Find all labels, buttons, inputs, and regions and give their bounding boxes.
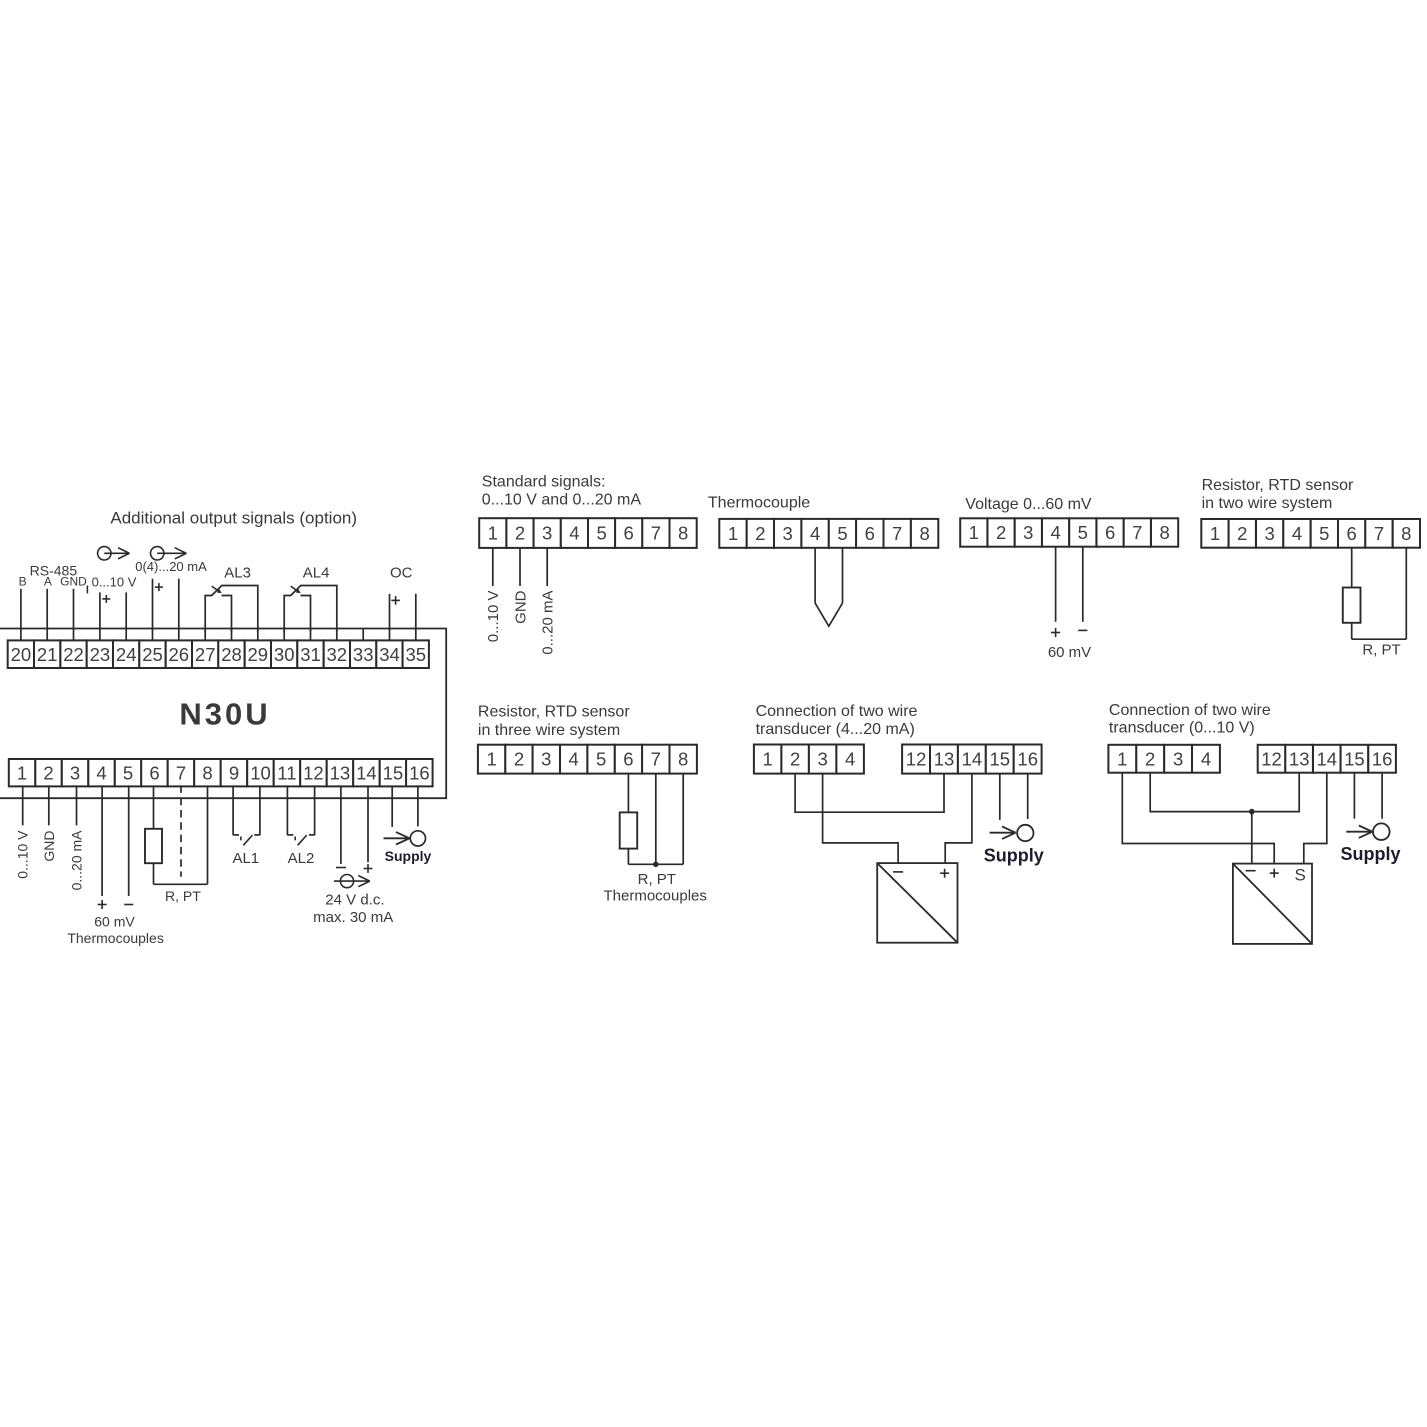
svg-text:25: 25 [142,644,163,665]
svg-text:6: 6 [865,523,875,544]
svg-text:60 mV: 60 mV [94,914,135,930]
svg-text:4: 4 [1201,748,1211,769]
svg-text:Supply: Supply [984,846,1044,866]
svg-text:4: 4 [569,749,579,770]
svg-text:R, PT: R, PT [638,871,676,888]
svg-text:Thermocouples: Thermocouples [67,930,164,946]
svg-text:1: 1 [1210,523,1220,544]
svg-text:2: 2 [1237,523,1247,544]
svg-text:GND: GND [41,831,57,862]
svg-text:29: 29 [248,644,269,665]
svg-text:60 mV: 60 mV [1048,644,1091,661]
svg-text:7: 7 [651,749,661,770]
svg-text:R, PT: R, PT [165,888,201,904]
svg-text:2: 2 [790,749,800,770]
svg-text:transducer (4...20 mA): transducer (4...20 mA) [756,721,915,738]
svg-text:30: 30 [274,644,295,665]
svg-text:2: 2 [43,762,53,783]
svg-text:2: 2 [514,749,524,770]
svg-text:4: 4 [810,523,820,544]
svg-text:8: 8 [678,749,688,770]
svg-text:2: 2 [996,522,1006,543]
svg-text:Thermocouples: Thermocouples [604,888,707,905]
svg-text:16: 16 [1017,749,1038,770]
svg-text:OC: OC [390,565,413,582]
svg-text:27: 27 [195,644,216,665]
svg-text:7: 7 [1374,523,1384,544]
svg-text:0...20 mA: 0...20 mA [540,591,557,655]
svg-text:A: A [44,574,52,588]
svg-text:14: 14 [962,749,983,770]
svg-text:in three wire system: in three wire system [478,722,620,739]
svg-text:8: 8 [202,762,212,783]
svg-text:3: 3 [817,749,827,770]
svg-text:6: 6 [623,749,633,770]
svg-text:3: 3 [541,749,551,770]
svg-text:6: 6 [1347,523,1357,544]
svg-text:5: 5 [1078,522,1088,543]
svg-text:7: 7 [892,523,902,544]
svg-text:N30U: N30U [179,697,270,732]
svg-text:3: 3 [1173,748,1183,769]
svg-text:7: 7 [176,762,186,783]
svg-text:11: 11 [277,762,296,783]
svg-text:32: 32 [327,644,348,665]
svg-text:2: 2 [1145,748,1155,769]
svg-text:Resistor, RTD sensor: Resistor, RTD sensor [1202,477,1354,494]
svg-text:3: 3 [70,762,80,783]
svg-text:Supply: Supply [385,848,432,864]
svg-text:13: 13 [934,749,955,770]
svg-text:AL3: AL3 [224,565,251,582]
svg-text:31: 31 [300,644,321,665]
svg-text:Additional output signals (opt: Additional output signals (option) [110,509,357,528]
svg-text:Supply: Supply [1340,844,1400,864]
svg-text:5: 5 [123,762,133,783]
svg-text:7: 7 [1132,522,1142,543]
svg-text:12: 12 [1261,748,1282,769]
svg-text:13: 13 [330,762,351,783]
svg-text:1: 1 [1117,748,1127,769]
svg-text:8: 8 [678,523,688,544]
svg-text:12: 12 [906,749,927,770]
svg-text:34: 34 [379,644,400,665]
svg-text:22: 22 [63,644,84,665]
svg-text:0...20 mA: 0...20 mA [69,830,85,891]
svg-text:transducer (0...10 V): transducer (0...10 V) [1109,720,1255,737]
svg-text:Connection of two wire: Connection of two wire [1109,702,1271,719]
svg-text:1: 1 [488,523,498,544]
svg-text:B: B [19,574,27,588]
svg-text:14: 14 [1317,748,1338,769]
svg-text:3: 3 [542,523,552,544]
svg-text:16: 16 [1372,748,1393,769]
svg-text:1: 1 [969,522,979,543]
svg-text:8: 8 [1159,522,1169,543]
svg-text:5: 5 [837,523,847,544]
svg-text:9: 9 [229,762,239,783]
svg-text:AL4: AL4 [303,565,330,582]
svg-text:15: 15 [383,762,404,783]
svg-text:21: 21 [37,644,58,665]
svg-text:Voltage 0...60 mV: Voltage 0...60 mV [965,496,1092,513]
svg-text:33: 33 [353,644,374,665]
svg-text:24 V d.c.: 24 V d.c. [325,891,384,908]
svg-text:6: 6 [149,762,159,783]
svg-text:1: 1 [728,523,738,544]
svg-text:Thermocouple: Thermocouple [708,495,810,512]
svg-text:24: 24 [116,644,137,665]
svg-text:max. 30 mA: max. 30 mA [313,909,393,926]
svg-text:26: 26 [169,644,190,665]
svg-text:14: 14 [356,762,377,783]
svg-text:6: 6 [624,523,634,544]
svg-text:0...10 V: 0...10 V [92,575,137,590]
svg-text:AL2: AL2 [288,850,315,867]
svg-text:1: 1 [17,762,27,783]
svg-text:5: 5 [1319,523,1329,544]
svg-text:8: 8 [1401,523,1411,544]
svg-text:28: 28 [221,644,242,665]
svg-text:3: 3 [1023,522,1033,543]
svg-text:2: 2 [515,523,525,544]
svg-text:4: 4 [569,523,579,544]
svg-text:Standard signals:: Standard signals: [482,474,606,491]
svg-text:Connection of two wire: Connection of two wire [756,703,918,720]
svg-text:20: 20 [11,644,32,665]
svg-text:10: 10 [250,762,271,783]
svg-text:4: 4 [1292,523,1302,544]
svg-text:in two wire system: in two wire system [1202,495,1333,512]
svg-text:13: 13 [1289,748,1310,769]
svg-text:3: 3 [1264,523,1274,544]
svg-text:12: 12 [303,762,324,783]
svg-text:4: 4 [96,762,106,783]
svg-text:1: 1 [486,749,496,770]
svg-text:GND: GND [60,574,87,588]
svg-text:6: 6 [1105,522,1115,543]
svg-text:15: 15 [990,749,1011,770]
svg-text:23: 23 [90,644,111,665]
svg-text:AL1: AL1 [232,850,259,867]
svg-text:16: 16 [409,762,430,783]
svg-text:R, PT: R, PT [1362,641,1400,658]
svg-text:GND: GND [512,590,529,624]
svg-text:7: 7 [651,523,661,544]
svg-text:4: 4 [845,749,855,770]
svg-text:4: 4 [1050,522,1060,543]
svg-text:3: 3 [783,523,793,544]
svg-text:8: 8 [919,523,929,544]
svg-text:0...10 V and 0...20 mA: 0...10 V and 0...20 mA [482,492,642,509]
svg-text:1: 1 [762,749,772,770]
svg-text:Resistor, RTD sensor: Resistor, RTD sensor [478,704,630,721]
svg-text:2: 2 [755,523,765,544]
svg-text:0...10 V: 0...10 V [15,830,31,879]
svg-text:0...10 V: 0...10 V [485,591,502,643]
svg-text:5: 5 [596,523,606,544]
svg-text:S: S [1295,866,1306,885]
svg-text:35: 35 [406,644,427,665]
svg-text:0(4)...20 mA: 0(4)...20 mA [135,559,207,574]
svg-text:15: 15 [1344,748,1365,769]
svg-text:5: 5 [596,749,606,770]
